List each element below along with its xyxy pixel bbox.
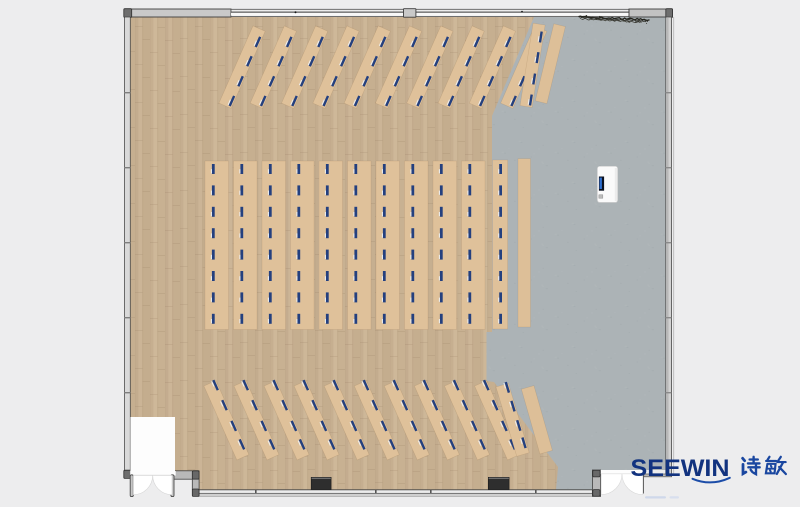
svg-text:SEEWIN: SEEWIN — [631, 455, 730, 482]
